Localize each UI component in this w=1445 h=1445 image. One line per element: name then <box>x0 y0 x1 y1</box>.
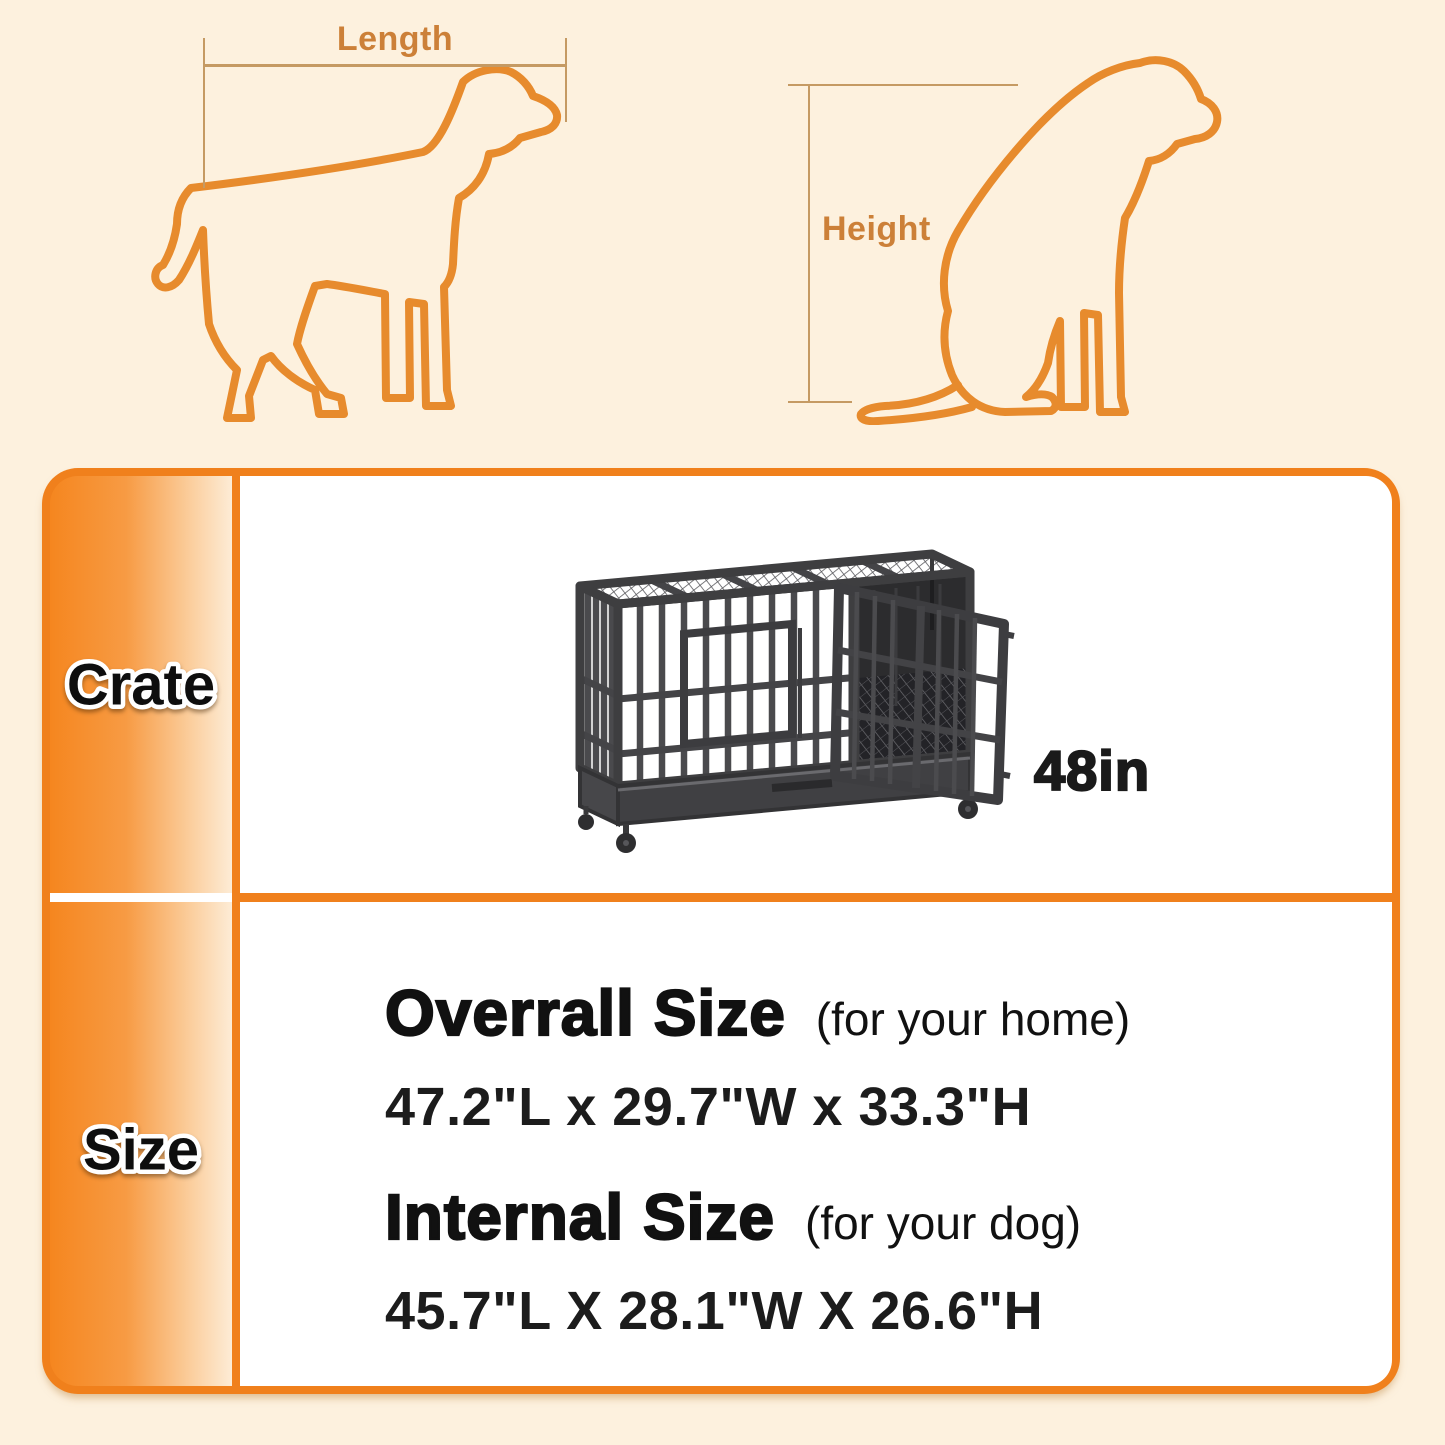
standing-dog-outline-icon <box>145 60 585 440</box>
spec-table-header-column: Crate Size <box>50 476 232 1386</box>
overall-size-dimensions: 47.2"L x 29.7"W x 33.3"H <box>385 1076 1352 1138</box>
internal-size-dimensions: 45.7"L X 28.1"W X 26.6"H <box>385 1280 1352 1342</box>
height-measure-tick-bottom <box>788 401 852 403</box>
crate-header-label: Crate <box>67 652 215 717</box>
height-label: Height <box>822 210 931 249</box>
crate-length-badge: 48in <box>1034 738 1150 803</box>
size-header-label: Size <box>83 1118 199 1183</box>
dog-crate-image <box>552 538 1022 868</box>
spec-table: Crate Size <box>42 468 1400 1394</box>
size-header-art: Size <box>50 1084 232 1204</box>
internal-size-row: Internal Size (for your dog) <box>385 1180 1352 1254</box>
row-header-crate: Crate <box>50 476 232 893</box>
internal-size-title: Internal Size <box>385 1180 775 1254</box>
overall-size-title: Overrall Size <box>385 976 786 1050</box>
content-row-divider <box>240 893 1392 902</box>
crate-image-cell: 48in <box>240 476 1392 893</box>
length-measure-tick-right <box>565 38 567 122</box>
spec-table-content-column: 48in Overrall Size (for your home) 47.2"… <box>240 476 1392 1386</box>
length-label: Length <box>330 20 460 59</box>
height-measure-bar <box>808 85 810 403</box>
length-measure-tick-left <box>203 38 205 188</box>
row-header-size: Size <box>50 902 232 1386</box>
height-measure-tick-top <box>788 84 1018 86</box>
overall-size-note: (for your home) <box>816 992 1130 1046</box>
overall-size-row: Overrall Size (for your home) <box>385 976 1352 1050</box>
header-row-divider <box>50 893 232 902</box>
size-text-cell: Overrall Size (for your home) 47.2"L x 2… <box>240 902 1392 1386</box>
length-measure-bar <box>203 64 566 67</box>
size-details: Overrall Size (for your home) 47.2"L x 2… <box>385 976 1352 1342</box>
product-size-infographic: Length Height Crate Size <box>0 0 1445 1445</box>
table-vertical-divider <box>232 476 240 1386</box>
internal-size-note: (for your dog) <box>805 1196 1081 1250</box>
crate-header-art: Crate <box>50 625 232 745</box>
